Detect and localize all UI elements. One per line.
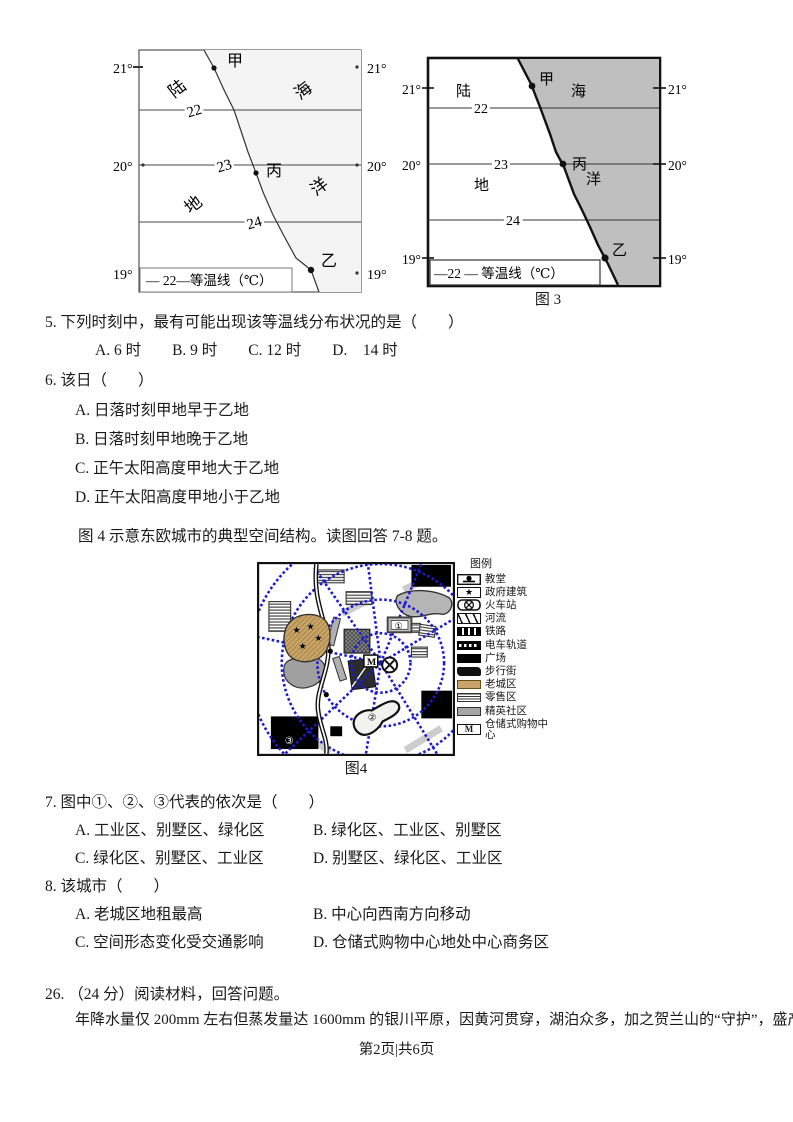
- question-5-options: A. 6 时 B. 9 时 C. 12 时 D. 14 时: [95, 338, 398, 360]
- point-jia-dot: [529, 83, 536, 90]
- legend-label: 教堂: [485, 574, 551, 585]
- legend-row: 广场: [456, 653, 556, 664]
- map-a-svg: 21° 20° 19° 21° 20° 19° 22 23 24 甲 丙 乙 陆…: [103, 40, 403, 298]
- isotherm-value: 22: [474, 102, 488, 117]
- elite-community-icon: [456, 706, 482, 717]
- lat-label: 19°: [668, 252, 687, 267]
- figure-4-legend: 图例 教堂 ★ 政府建筑 火车站 河流 铁路 电车轨道: [456, 559, 556, 743]
- question-26-text: 26. （24 分）阅读材料，回答问题。: [45, 982, 289, 1004]
- point-yi-dot: [308, 267, 314, 273]
- legend-label: 电车轨道: [485, 640, 551, 651]
- plaza-icon: [456, 653, 482, 664]
- lat-label: 21°: [402, 82, 421, 97]
- legend-label: 铁路: [485, 626, 551, 637]
- lat-label: 20°: [367, 160, 387, 175]
- map-b-legend-text: —22 — 等温线（℃）: [433, 265, 564, 281]
- region-land2-label: 地: [474, 177, 489, 194]
- lat-label: 21°: [668, 82, 687, 97]
- railway-icon: [456, 626, 482, 637]
- marker-2: ②: [368, 713, 376, 723]
- legend-row: 电车轨道: [456, 640, 556, 651]
- church-marker-icon: ★: [293, 625, 301, 635]
- tick: [355, 65, 358, 68]
- m-glyph: M: [465, 725, 474, 734]
- point-yi-dot: [601, 254, 608, 261]
- legend-row: 老城区: [456, 679, 556, 690]
- map-b-caption: 图 3: [398, 288, 698, 309]
- legend-row: 铁路: [456, 626, 556, 637]
- legend-label: 仓储式购物中心: [485, 719, 551, 741]
- church-dot-icon: [324, 692, 329, 697]
- question-7-option-b: B. 绿化区、工业区、别墅区: [313, 818, 502, 840]
- region-ocean-label: 洋: [586, 171, 601, 188]
- legend-title: 图例: [470, 559, 556, 571]
- marker-m: M: [367, 657, 377, 668]
- lat-label: 20°: [113, 160, 133, 175]
- tick: [355, 163, 358, 166]
- map-b-svg: 21° 20° 19° 21° 20° 19° 22 23 24 甲 丙 乙 陆…: [398, 52, 698, 292]
- question-7-text: 7. 图中①、②、③代表的依次是（ ）: [45, 790, 324, 812]
- question-8-option-d: D. 仓储式购物中心地处中心商务区: [313, 930, 549, 952]
- map-a-legend-text: — 22—等温线（℃）: [145, 272, 272, 288]
- question-8-option-b: B. 中心向西南方向移动: [313, 902, 471, 924]
- region-land-label: 陆: [456, 83, 471, 100]
- question-6-option-b: B. 日落时刻甲地晚于乙地: [75, 427, 248, 449]
- figure-map-b: 21° 20° 19° 21° 20° 19° 22 23 24 甲 丙 乙 陆…: [398, 52, 698, 292]
- point-yi-label: 乙: [321, 253, 337, 270]
- lat-label: 19°: [113, 268, 133, 283]
- legend-row: ★ 政府建筑: [456, 587, 556, 598]
- point-bing-label: 丙: [572, 157, 587, 173]
- legend-label: 步行街: [485, 666, 551, 677]
- train-station-icon: [456, 600, 482, 611]
- warehouse-mall-icon: M: [456, 724, 482, 735]
- legend-row: 零售区: [456, 692, 556, 703]
- church-icon: [456, 574, 482, 585]
- tram-track-icon: [456, 640, 482, 651]
- lat-label: 21°: [113, 62, 133, 77]
- point-jia-label: 甲: [539, 72, 554, 88]
- figure-4-caption: 图4: [257, 757, 455, 778]
- church-dot-icon: [328, 649, 333, 654]
- page-number: 第2页|共6页: [0, 1038, 793, 1059]
- lat-label: 20°: [402, 158, 421, 173]
- star-glyph: ★: [465, 588, 473, 597]
- city-map-svg: ★ ★ ★ ★ ② ① ③ M: [257, 562, 455, 756]
- plaza-area: [330, 726, 342, 736]
- legend-label: 零售区: [485, 692, 551, 703]
- question-26-material: 年降水量仅 200mm 左右但蒸发量达 1600mm 的银川平原，因黄河贯穿，湖…: [75, 1008, 765, 1029]
- question-5-text: 5. 下列时刻中，最有可能出现该等温线分布状况的是（ ）: [45, 310, 464, 332]
- question-7-option-a: A. 工业区、别墅区、绿化区: [75, 818, 264, 840]
- marker-3: ③: [285, 736, 294, 747]
- lat-label: 19°: [367, 268, 387, 283]
- point-bing-label: 丙: [266, 163, 282, 180]
- government-building-icon: ★: [456, 587, 482, 598]
- point-jia-dot: [211, 65, 216, 70]
- point-jia-label: 甲: [227, 53, 243, 70]
- point-yi-label: 乙: [612, 243, 627, 259]
- question-7-option-c: C. 绿化区、别墅区、工业区: [75, 846, 264, 868]
- legend-label: 火车站: [485, 600, 551, 611]
- lat-label: 21°: [367, 62, 387, 77]
- pedestrian-street-icon: [456, 666, 482, 677]
- marker-1: ①: [395, 621, 403, 631]
- isotherm-value: 24: [506, 214, 520, 229]
- legend-row: 教堂: [456, 574, 556, 585]
- region-sea-label: 海: [571, 83, 586, 100]
- question-8-option-c: C. 空间形态变化受交通影响: [75, 930, 264, 952]
- question-6-text: 6. 该日（ ）: [45, 368, 154, 390]
- question-8-text: 8. 该城市（ ）: [45, 874, 169, 896]
- question-6-option-d: D. 正午太阳高度甲地小于乙地: [75, 485, 280, 507]
- legend-label: 精英社区: [485, 706, 551, 717]
- legend-label: 广场: [485, 653, 551, 664]
- church-marker-icon: ★: [299, 641, 307, 651]
- river-icon: [456, 613, 482, 624]
- question-6-option-a: A. 日落时刻甲地早于乙地: [75, 398, 249, 420]
- church-marker-icon: ★: [307, 621, 315, 631]
- plaza-area: [421, 691, 452, 719]
- isotherm-value: 23: [494, 158, 508, 173]
- legend-row: 步行街: [456, 666, 556, 677]
- legend-row: M 仓储式购物中心: [456, 719, 556, 741]
- figure-map-a: 21° 20° 19° 21° 20° 19° 22 23 24 甲 丙 乙 陆…: [103, 40, 403, 298]
- figure-city-map: ★ ★ ★ ★ ② ① ③ M: [257, 562, 455, 756]
- legend-row: 火车站: [456, 600, 556, 611]
- question-8-option-a: A. 老城区地租最高: [75, 902, 202, 924]
- old-town-icon: [456, 679, 482, 690]
- lat-label: 20°: [668, 158, 687, 173]
- legend-row: 河流: [456, 613, 556, 624]
- legend-label: 老城区: [485, 679, 551, 690]
- point-bing-dot: [253, 170, 258, 175]
- lat-label: 19°: [402, 252, 421, 267]
- question-7-option-d: D. 别墅区、绿化区、工业区: [313, 846, 502, 868]
- church-marker-icon: ★: [314, 633, 322, 643]
- point-bing-dot: [560, 161, 567, 168]
- tick: [141, 163, 144, 166]
- exam-page: 21° 20° 19° 21° 20° 19° 22 23 24 甲 丙 乙 陆…: [0, 0, 793, 1122]
- legend-label: 河流: [485, 613, 551, 624]
- legend-label: 政府建筑: [485, 587, 551, 598]
- retail-district-icon: [456, 692, 482, 703]
- tick: [355, 271, 358, 274]
- legend-row: 精英社区: [456, 706, 556, 717]
- question-6-option-c: C. 正午太阳高度甲地大于乙地: [75, 456, 279, 478]
- figure-4-intro: 图 4 示意东欧城市的典型空间结构。读图回答 7-8 题。: [78, 524, 447, 546]
